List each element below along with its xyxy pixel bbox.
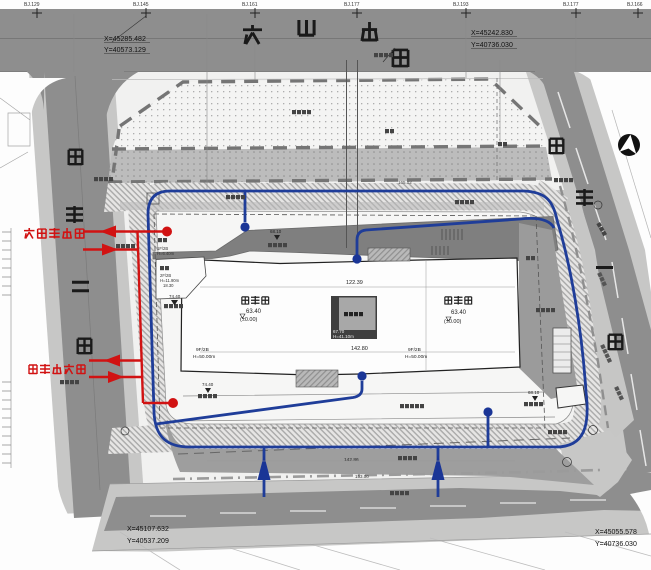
svg-text:68.10: 68.10 [270, 229, 282, 234]
svg-text:122.39: 122.39 [346, 280, 363, 286]
svg-text:Y=40736.030: Y=40736.030 [471, 42, 513, 49]
svg-text:(±0.00): (±0.00) [444, 319, 462, 325]
svg-text:H=50.00m: H=50.00m [193, 354, 215, 360]
svg-text:X=45285.482: X=45285.482 [104, 36, 146, 43]
svg-text:74.40: 74.40 [202, 382, 214, 387]
svg-text:68.10: 68.10 [528, 390, 540, 395]
svg-text:Y=40573.129: Y=40573.129 [104, 47, 146, 54]
svg-text:18.30: 18.30 [163, 283, 174, 288]
svg-text:Y=40736.030: Y=40736.030 [595, 541, 637, 548]
svg-text:BJ.177: BJ.177 [344, 2, 360, 8]
svg-text:153.00: 153.00 [355, 474, 369, 479]
svg-text:BJ.129: BJ.129 [24, 2, 40, 8]
svg-text:9F/2B: 9F/2B [196, 347, 209, 353]
svg-text:Y=40537.209: Y=40537.209 [127, 538, 169, 545]
svg-text:BJ.166: BJ.166 [627, 2, 643, 8]
svg-text:BJ.161: BJ.161 [242, 2, 258, 8]
svg-text:63.40: 63.40 [451, 310, 467, 316]
svg-text:63.40: 63.40 [246, 309, 262, 315]
svg-text:142.86: 142.86 [344, 457, 359, 463]
svg-text:X=45055.578: X=45055.578 [595, 529, 637, 536]
svg-text:H=41.10m: H=41.10m [333, 334, 354, 339]
svg-text:H=50.00m: H=50.00m [405, 354, 427, 360]
svg-text:H=6.40m: H=6.40m [157, 251, 175, 256]
svg-text:BJ.145: BJ.145 [133, 2, 149, 8]
svg-text:X=45242.830: X=45242.830 [471, 30, 513, 37]
svg-text:142.80: 142.80 [351, 346, 368, 352]
svg-text:9F/2B: 9F/2B [408, 347, 421, 353]
svg-text:74.40: 74.40 [169, 294, 181, 299]
svg-text:BJ.193: BJ.193 [453, 2, 469, 8]
svg-text:BJ.177: BJ.177 [563, 2, 579, 8]
svg-text:X=45107.632: X=45107.632 [127, 526, 169, 533]
svg-text:165.02: 165.02 [398, 180, 412, 185]
